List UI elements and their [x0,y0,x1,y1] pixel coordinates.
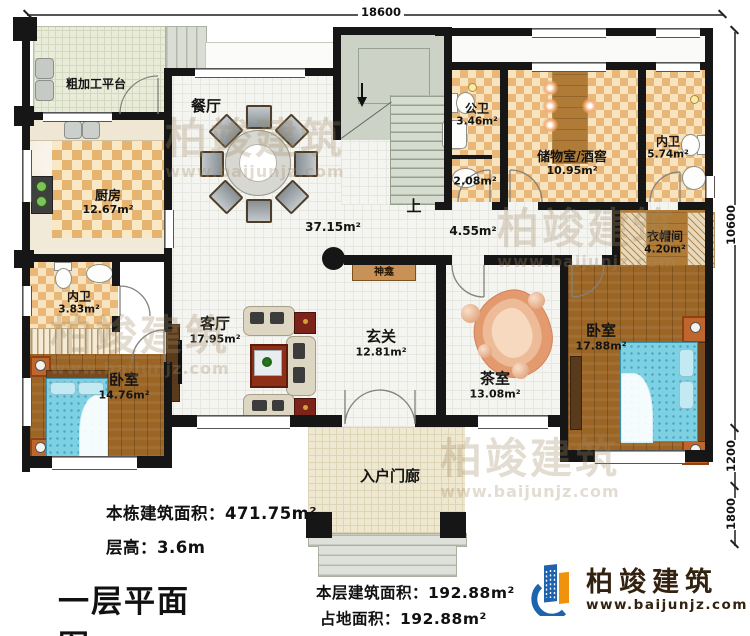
note-floor-height: 层高：3.6m [106,534,205,558]
column [322,247,345,270]
room-label-ensuite-left: 内卫3.83m² [58,290,99,317]
dim-right-lower: 1800 [724,498,738,530]
dim-right-upper: 10600 [724,205,738,245]
room-label-dining: 餐厅 [191,98,221,116]
prep-sink [35,80,54,101]
room-label-bedroom-left: 卧室14.76m² [98,372,149,403]
kitchen-sink [82,121,100,139]
wall [705,28,713,462]
stove-burner [36,196,47,207]
window [478,415,548,429]
stair-arrow-head [357,97,367,107]
wash-basin [86,264,113,283]
window [656,28,700,38]
shrine-cabinet: 神龛 [352,264,416,281]
door-bath-left [120,286,150,316]
wall [164,68,172,210]
room-label-kitchen: 厨房12.67m² [82,189,133,217]
wall [22,254,172,262]
room-label-storage: 储物室/酒窖10.95m² [537,150,607,178]
room-label-public-bath: 公卫3.46m² [456,102,497,129]
stove-burner [36,181,47,192]
wall [612,210,620,265]
dining-table-top [239,144,277,182]
wall [435,202,452,210]
end-table [294,312,316,334]
note-floor-area: 本层建筑面积：192.88m² [316,581,515,603]
stair-treads [390,95,445,205]
sofa-right [286,336,316,396]
room-label-living: 客厅17.95m² [189,316,240,347]
wall [164,362,172,462]
shrine-label: 神龛 [374,267,394,278]
company-logo: 柏竣建筑 www.baijunjz.com [530,562,748,620]
bed-right [620,342,698,442]
window [532,28,606,38]
wall [290,415,342,427]
wall [500,70,508,202]
sliding-door [164,210,174,248]
room-area-dining: 37.15m² [305,220,361,234]
wall [436,255,446,427]
rear-terrace [205,42,335,70]
room-area-hallway: 4.55m² [449,224,496,238]
cellar-light [542,117,558,133]
room-label-bedroom-right: 卧室17.88m² [575,323,626,354]
stair-lower [341,140,390,205]
dining-chair [294,151,318,177]
note-building-area: 本栋建筑面积：471.75m² [106,500,317,524]
logo-icon [530,562,578,620]
wash-basin [682,166,706,190]
window [656,62,700,72]
room-label-foyer: 玄关12.81m² [355,329,406,360]
wall [492,202,508,210]
closet-shelf-left [30,328,120,356]
dining-chair [200,151,224,177]
window [43,112,112,122]
logo-name: 柏竣建筑 [586,569,718,597]
wall [638,70,646,202]
cellar-light [582,98,598,114]
porch-column [440,512,466,538]
tv-living [178,340,182,384]
stair-arrow-line [361,83,363,98]
window [195,68,305,78]
wall [538,202,648,210]
dim-right-mid: 1200 [724,440,738,472]
logo-url: www.baijunjz.com [586,597,748,613]
toilet-bowl [55,268,72,289]
tea-rug-dot [528,292,545,309]
plan-title-text: 一层平面图 [58,576,212,636]
plan-title: 一层平面图 1:100 [56,576,330,636]
window [22,378,32,426]
wall [164,415,197,427]
logo-tower-orange [559,572,569,604]
wall-thin [452,155,492,159]
cellar-light [542,80,558,96]
window [532,62,606,72]
room-label-prep: 粗加工平台 [66,77,126,91]
tea-rug-dot [478,344,492,358]
note-footprint: 占地面积：192.88m² [320,607,487,629]
dining-chair [246,105,272,129]
sofa-top [243,306,295,336]
tv-cabinet-bedroom [570,356,582,430]
tea-rug-dot [461,304,480,323]
floor-plan-page: 神龛 [0,0,750,636]
room-label-cloakroom: 衣帽间4.20m² [644,230,685,257]
kitchen-sink [64,121,82,139]
stairs-up-label: 上 [406,198,421,216]
room-area-wash: 2.08m² [453,176,496,189]
dining-chair [246,199,272,223]
wall [444,27,452,210]
window [22,286,32,316]
porch-steps [318,545,457,577]
window [595,450,685,464]
window [705,176,715,198]
plan-title-scale: 1:100 [232,632,324,636]
wall [560,255,568,462]
plant [262,357,272,367]
room-label-porch: 入户门廊 [360,468,420,486]
cellar-light [542,98,558,114]
room-label-tea: 茶室13.08m² [469,371,520,402]
dim-top-value: 18600 [358,5,404,19]
prep-sink [35,58,54,79]
wall-lamp [690,95,699,104]
wall [112,262,120,286]
window [197,415,290,429]
window [52,456,137,470]
wall [112,316,120,332]
wall [484,255,572,265]
room-label-ensuite-top: 内卫5.74m² [647,135,688,162]
wall-lamp [468,83,477,92]
wall [678,202,713,210]
wardrobe-left [620,212,647,268]
window [22,150,32,202]
wall [333,27,341,140]
